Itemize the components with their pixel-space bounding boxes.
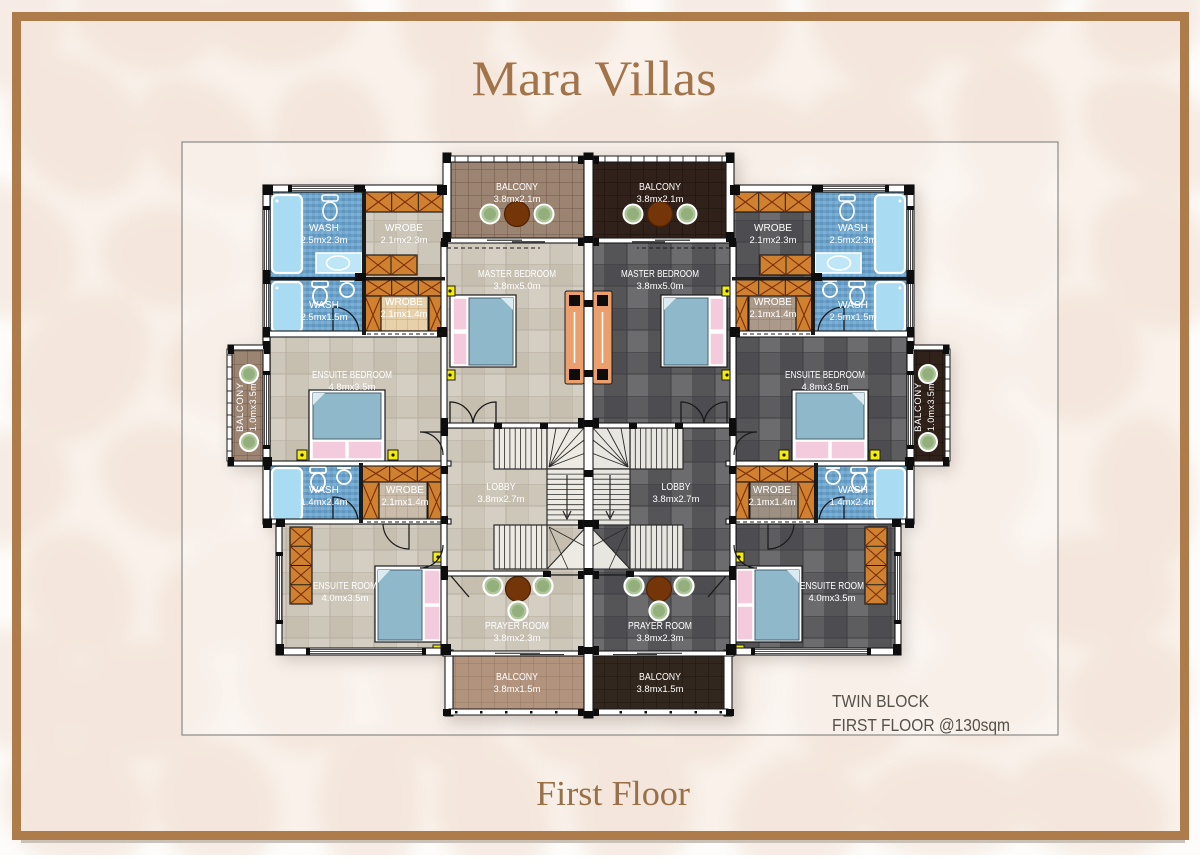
svg-text:3.8mx2.7m: 3.8mx2.7m	[478, 494, 525, 505]
svg-text:WASH: WASH	[838, 223, 868, 234]
svg-text:2.5mx1.5m: 2.5mx1.5m	[301, 312, 348, 323]
svg-text:4.0mx3.5m: 4.0mx3.5m	[809, 593, 856, 604]
svg-text:ENSUITE ROOM: ENSUITE ROOM	[313, 581, 377, 592]
svg-text:LOBBY: LOBBY	[487, 482, 516, 493]
svg-text:4.0mx3.5m: 4.0mx3.5m	[322, 593, 369, 604]
svg-text:2.1mx2.3m: 2.1mx2.3m	[750, 235, 797, 246]
svg-text:3.8mx2.3m: 3.8mx2.3m	[637, 633, 684, 644]
svg-text:BALCONY: BALCONY	[496, 182, 538, 193]
svg-text:2.5mx2.3m: 2.5mx2.3m	[301, 235, 348, 246]
svg-text:BALCONY: BALCONY	[639, 182, 681, 193]
svg-text:WASH: WASH	[309, 223, 339, 234]
svg-text:3.8mx2.3m: 3.8mx2.3m	[494, 633, 541, 644]
svg-text:Mara Villas: Mara Villas	[472, 50, 717, 106]
svg-text:3.8mx2.1m: 3.8mx2.1m	[637, 194, 684, 205]
svg-text:3.8mx2.7m: 3.8mx2.7m	[653, 494, 700, 505]
svg-text:2.1mx1.4m: 2.1mx1.4m	[750, 309, 797, 320]
svg-text:MASTER BEDROOM: MASTER BEDROOM	[621, 269, 699, 280]
svg-text:3.8mx5.0m: 3.8mx5.0m	[637, 281, 684, 292]
svg-text:BALCONY: BALCONY	[235, 382, 246, 432]
svg-text:ENSUITE BEDROOM: ENSUITE BEDROOM	[312, 370, 392, 381]
svg-text:BALCONY: BALCONY	[496, 672, 538, 683]
svg-text:1.4mx2.4m: 1.4mx2.4m	[301, 497, 348, 508]
svg-text:2.1mx2.3m: 2.1mx2.3m	[381, 235, 428, 246]
svg-text:ENSUITE BEDROOM: ENSUITE BEDROOM	[785, 370, 865, 381]
svg-text:WASH: WASH	[838, 485, 868, 496]
svg-text:BALCONY: BALCONY	[639, 672, 681, 683]
svg-text:3.8mx5.0m: 3.8mx5.0m	[494, 281, 541, 292]
svg-text:WROBE: WROBE	[386, 485, 424, 496]
svg-text:3.8mx1.5m: 3.8mx1.5m	[494, 684, 541, 695]
svg-text:1.0mx3.5m: 1.0mx3.5m	[926, 383, 936, 431]
svg-text:WROBE: WROBE	[754, 297, 792, 308]
svg-text:WROBE: WROBE	[385, 223, 423, 234]
svg-text:WROBE: WROBE	[385, 297, 423, 308]
svg-text:3.8mx2.1m: 3.8mx2.1m	[494, 194, 541, 205]
svg-text:2.1mx1.4m: 2.1mx1.4m	[382, 497, 429, 508]
svg-text:PRAYER ROOM: PRAYER ROOM	[485, 621, 549, 632]
svg-text:WROBE: WROBE	[753, 485, 791, 496]
svg-text:TWIN BLOCK: TWIN BLOCK	[832, 691, 929, 711]
svg-text:FIRST FLOOR @130sqm: FIRST FLOOR @130sqm	[832, 715, 1010, 735]
svg-text:4.8mx3.5m: 4.8mx3.5m	[329, 382, 376, 393]
svg-text:2.5mx1.5m: 2.5mx1.5m	[830, 312, 877, 323]
svg-text:ENSUITE ROOM: ENSUITE ROOM	[800, 581, 864, 592]
svg-text:2.1mx1.4m: 2.1mx1.4m	[381, 309, 428, 320]
svg-text:WASH: WASH	[309, 485, 339, 496]
svg-text:4.8mx3.5m: 4.8mx3.5m	[802, 382, 849, 393]
svg-text:MASTER BEDROOM: MASTER BEDROOM	[478, 269, 556, 280]
svg-text:BALCONY: BALCONY	[913, 382, 924, 432]
svg-text:First Floor: First Floor	[536, 774, 690, 813]
svg-text:3.8mx1.5m: 3.8mx1.5m	[637, 684, 684, 695]
svg-text:LOBBY: LOBBY	[662, 482, 691, 493]
svg-text:2.5mx2.3m: 2.5mx2.3m	[830, 235, 877, 246]
svg-text:WASH: WASH	[309, 300, 339, 311]
svg-text:2.1mx1.4m: 2.1mx1.4m	[749, 497, 796, 508]
svg-text:1.0mx3.5m: 1.0mx3.5m	[248, 383, 258, 431]
svg-text:WROBE: WROBE	[754, 223, 792, 234]
svg-text:PRAYER ROOM: PRAYER ROOM	[628, 621, 692, 632]
svg-text:1.4mx2.4m: 1.4mx2.4m	[830, 497, 877, 508]
svg-text:WASH: WASH	[838, 300, 868, 311]
